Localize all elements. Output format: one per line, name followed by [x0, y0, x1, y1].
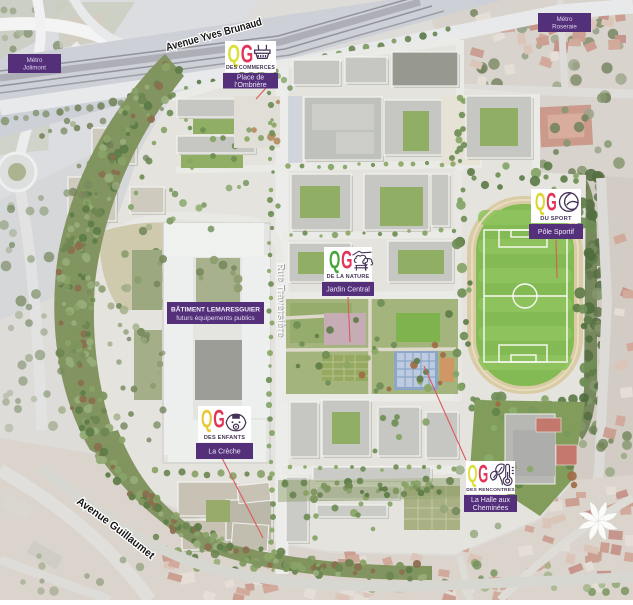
svg-text:Métro: Métro: [27, 57, 43, 64]
svg-text:La Crèche: La Crèche: [208, 449, 240, 456]
svg-text:DES RENCONTRES: DES RENCONTRES: [466, 487, 515, 493]
svg-text:Rue Traversière: Rue Traversière: [274, 263, 285, 337]
svg-text:DES ENFANTS: DES ENFANTS: [204, 435, 245, 441]
svg-text:DU SPORT: DU SPORT: [540, 216, 572, 222]
svg-text:Q: Q: [535, 189, 546, 217]
svg-text:Pôle Sportif: Pôle Sportif: [538, 229, 574, 236]
svg-text:DES COMMERCES: DES COMMERCES: [226, 65, 275, 71]
svg-text:G: G: [546, 189, 557, 217]
svg-text:Place de: Place de: [237, 75, 264, 82]
svg-text:G: G: [341, 247, 352, 275]
svg-text:Métro: Métro: [557, 16, 573, 23]
svg-text:BÂTIMENT LEMARESGUIER: BÂTIMENT LEMARESGUIER: [171, 305, 260, 314]
svg-text:Q: Q: [468, 461, 478, 489]
svg-text:DE LA NATURE: DE LA NATURE: [327, 274, 370, 280]
svg-text:Jolimont: Jolimont: [23, 65, 46, 72]
svg-text:Q: Q: [201, 406, 213, 434]
svg-text:Q: Q: [329, 247, 340, 275]
svg-text:futurs équipements publics: futurs équipements publics: [176, 315, 255, 322]
svg-text:G: G: [478, 461, 488, 489]
svg-text:Jardin Central: Jardin Central: [326, 287, 370, 294]
svg-text:Cheminées: Cheminées: [473, 505, 509, 512]
svg-text:La Halle aux: La Halle aux: [471, 497, 510, 504]
svg-text:Roseraie: Roseraie: [552, 24, 577, 31]
svg-text:l’Ombrière: l’Ombrière: [234, 82, 266, 89]
svg-text:G: G: [213, 406, 225, 434]
